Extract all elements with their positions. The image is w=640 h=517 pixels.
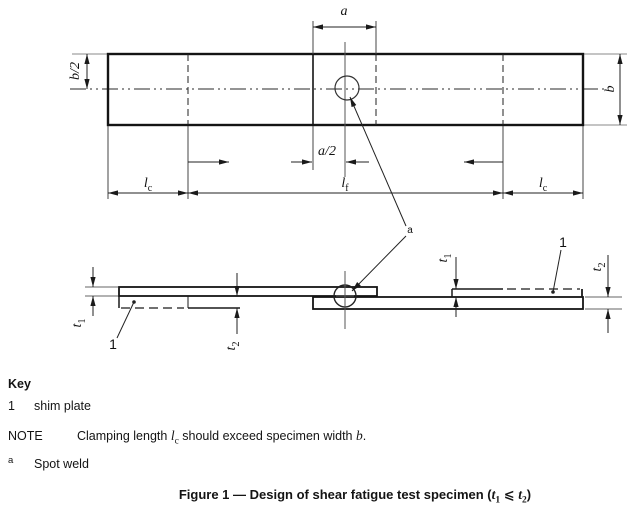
note-text-post: .: [363, 429, 366, 443]
upper-plate-t1: [119, 287, 377, 296]
dim-label-b-half: b/2: [69, 62, 83, 80]
leader-lines: [117, 97, 561, 338]
dim-label-lc-left: lc: [144, 177, 152, 191]
dim-label-t2-left: t2: [225, 342, 239, 351]
note-symbol-lc: lc: [171, 428, 179, 443]
leader-dot-left: [132, 300, 136, 304]
technical-drawing: a b/2 b a/2 lc lf lc a t1 t2 t1 t2 1 1: [0, 0, 640, 372]
dim-label-t1-right: t1: [437, 254, 451, 263]
key-item-shim-plate: 1shim plate: [8, 399, 91, 413]
dim-label-t2-right: t2: [591, 263, 605, 272]
note-row: NOTEClamping length lc should exceed spe…: [8, 428, 366, 447]
key-item-ref: 1: [8, 399, 34, 413]
dimension-lines-top: [87, 27, 620, 193]
dim-label-a-half: a/2: [318, 145, 336, 159]
dim-label-a: a: [341, 5, 348, 19]
note-label: NOTE: [8, 429, 77, 443]
caption-relation: ⩽: [500, 487, 518, 502]
spot-weld-circle-top: [335, 76, 359, 100]
leader-dot-right: [551, 290, 555, 294]
footnote-ref: a: [8, 455, 34, 466]
figure-page: a b/2 b a/2 lc lf lc a t1 t2 t1 t2 1 1 K…: [0, 0, 640, 517]
footnote-text: Spot weld: [34, 457, 89, 471]
right-shim-plate: [452, 289, 582, 297]
left-shim-plate: [119, 296, 240, 308]
dim-label-lf: lf: [341, 177, 348, 191]
caption-symbol-t2: t2: [518, 487, 527, 502]
extension-lines-side: [85, 287, 622, 309]
figure-caption: Figure 1 — Design of shear fatigue test …: [70, 487, 640, 506]
caption-symbol-t1: t1: [492, 487, 501, 502]
note-text-pre: Clamping length: [77, 429, 171, 443]
dim-label-b: b: [604, 86, 618, 93]
caption-close: ): [527, 487, 531, 502]
note-symbol-b: b: [356, 428, 363, 443]
side-view: [85, 97, 622, 338]
footnote-row: aSpot weld: [8, 455, 89, 471]
key-item-text: shim plate: [34, 399, 91, 413]
dimension-lines-side: [93, 255, 608, 334]
key-title: Key: [8, 377, 31, 391]
weld-footnote-marker: a: [407, 226, 413, 236]
dim-label-lc-right: lc: [539, 177, 547, 191]
note-text-mid: should exceed specimen width: [179, 429, 356, 443]
caption-text: Figure 1 — Design of shear fatigue test …: [179, 487, 492, 502]
shim-ref-label-left: 1: [109, 337, 117, 351]
dim-label-t1-left: t1: [71, 319, 85, 328]
top-view: [70, 21, 627, 199]
shim-ref-label-right: 1: [559, 235, 567, 249]
